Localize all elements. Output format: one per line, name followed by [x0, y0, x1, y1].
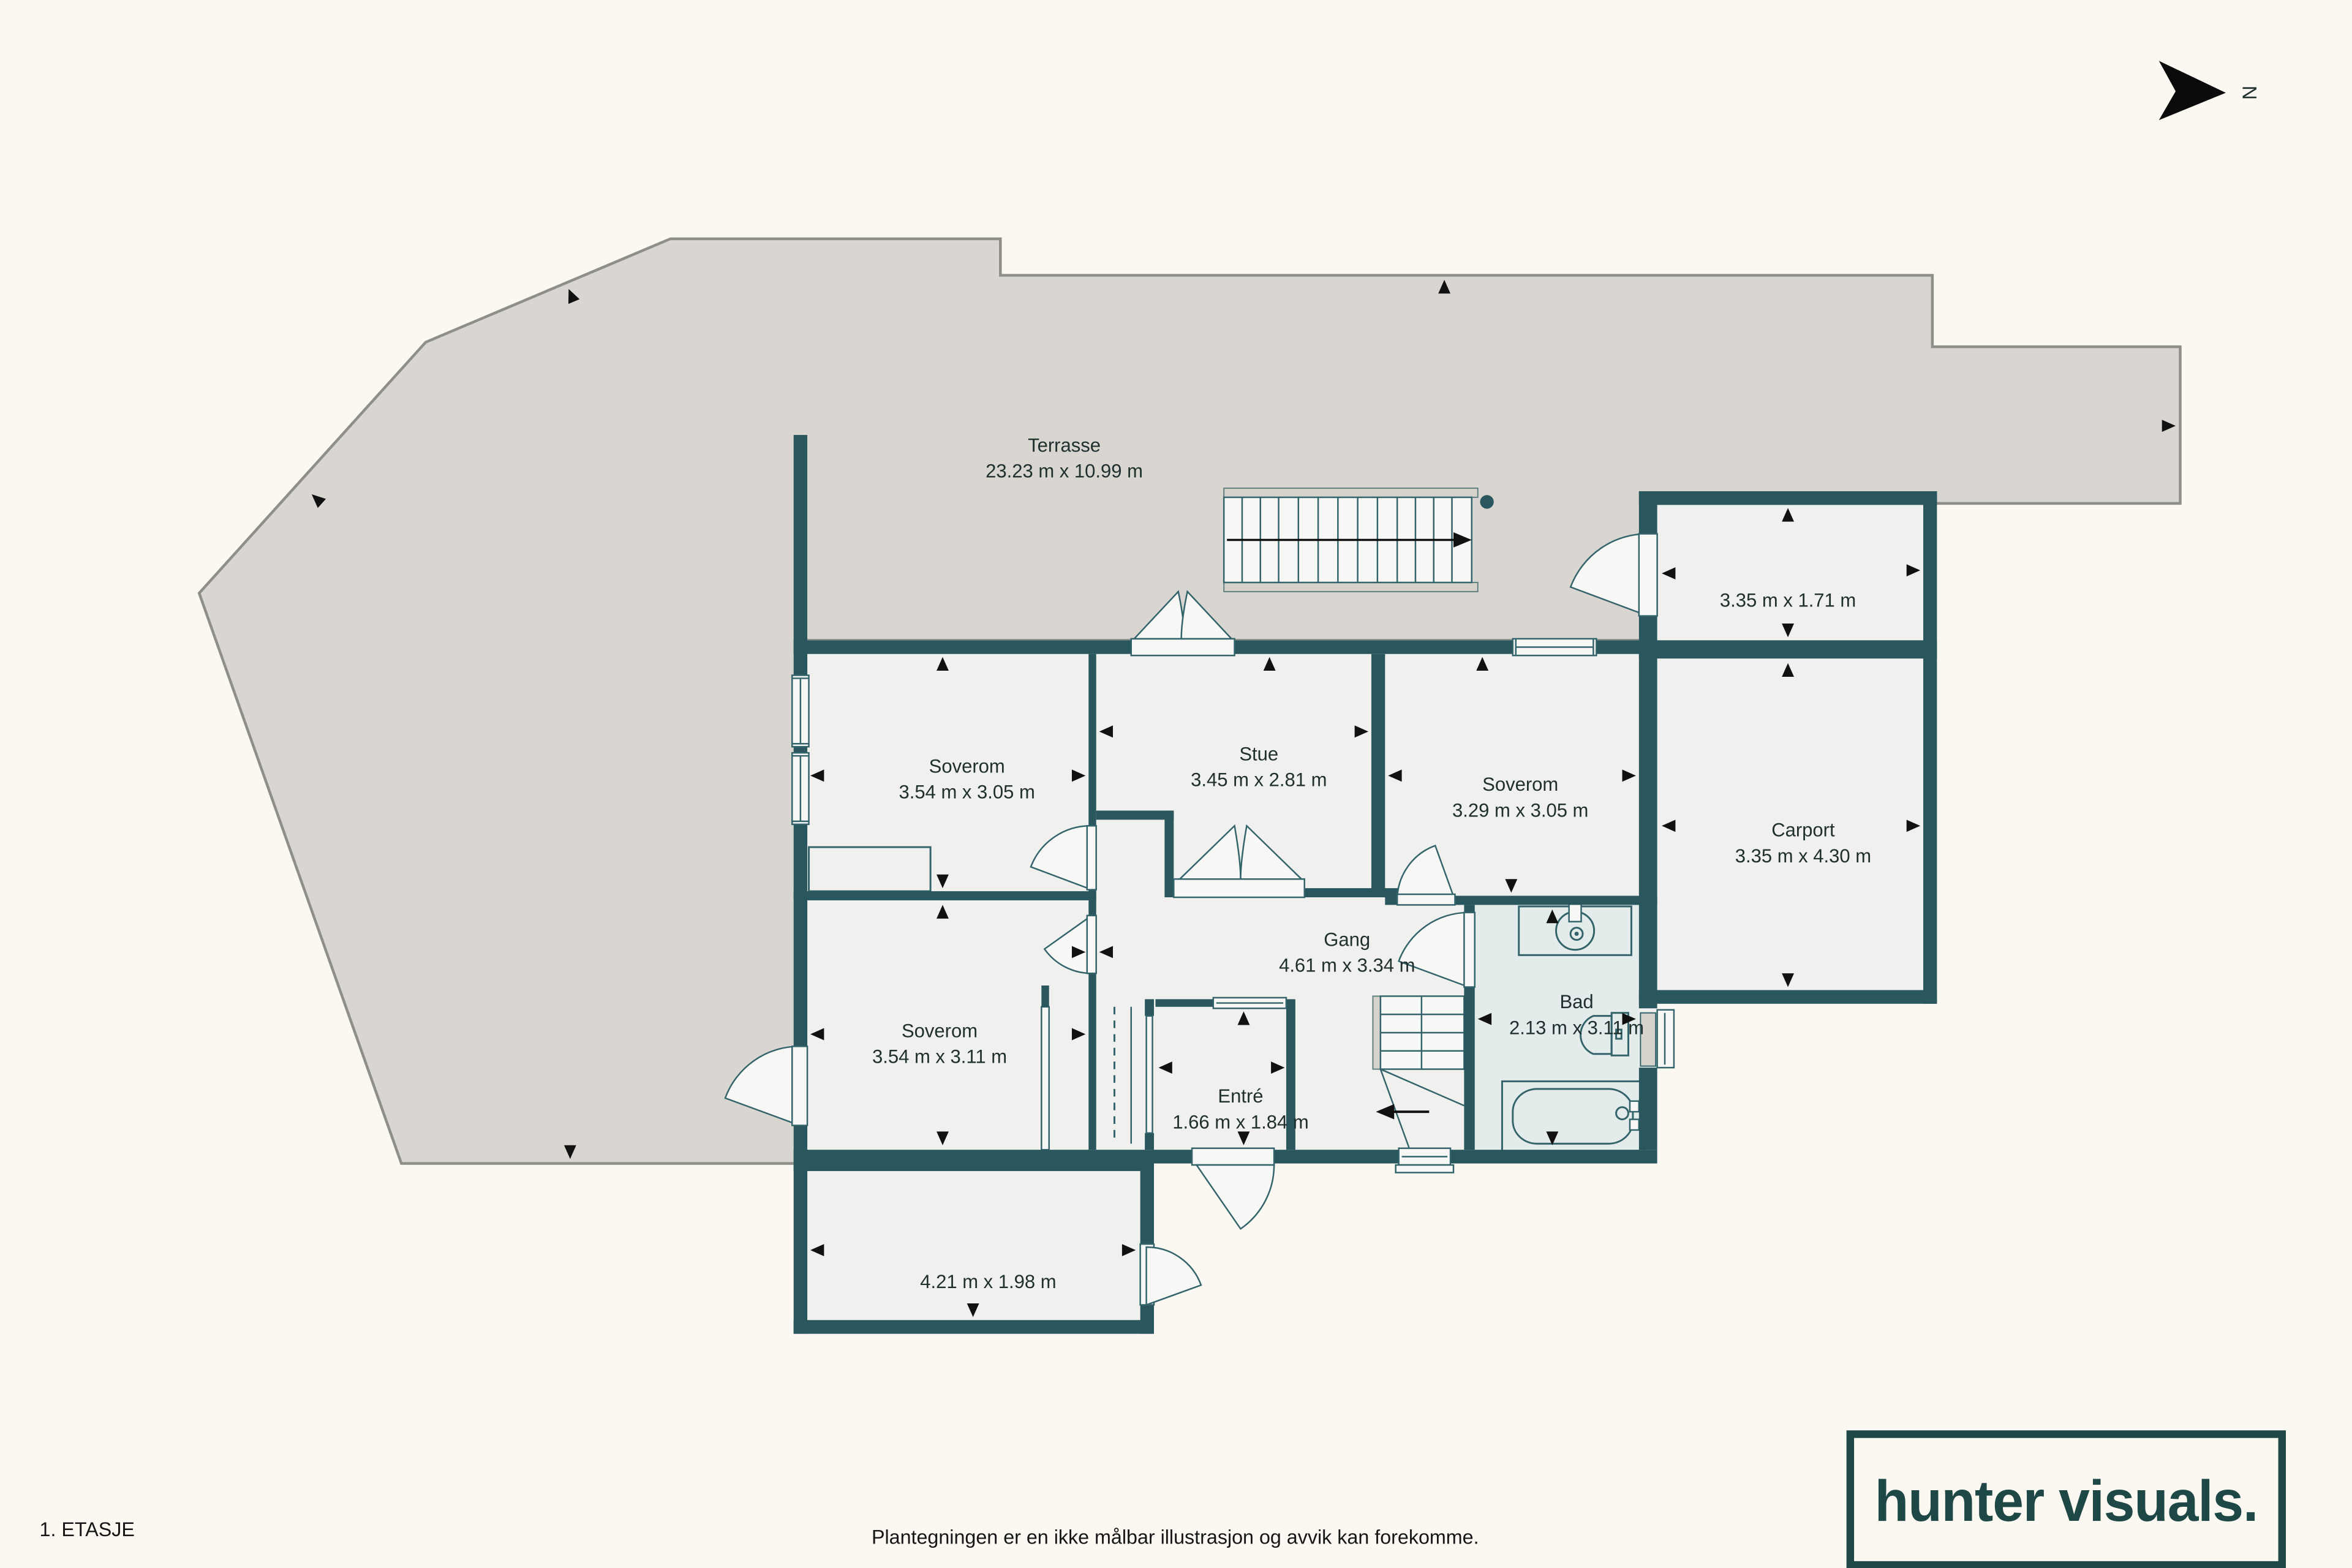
stair-rail-bottom: [1224, 582, 1478, 592]
footer: 1. ETASJE Plantegningen er en ikke målba…: [40, 1434, 2282, 1565]
wall-entre-top: [1155, 999, 1213, 1006]
room-label-gang: Gang: [1324, 929, 1370, 950]
wall-lowerroom-left: [794, 1164, 807, 1334]
room-dims-lower-room: 4.21 m x 1.98 m: [920, 1271, 1056, 1292]
room-dims-entre: 1.66 m x 1.84 m: [1172, 1111, 1308, 1133]
wall-bottom-3: [1450, 1150, 1657, 1163]
logo-text: hunter visuals.: [1875, 1469, 2258, 1533]
room-label-soverom-1: Soverom: [929, 755, 1005, 777]
carport-floor: [1639, 491, 1937, 1004]
logo: hunter visuals.: [1850, 1434, 2282, 1565]
wall-soverom1-bottom: [794, 891, 1096, 900]
floor-label: 1. ETASJE: [40, 1518, 135, 1540]
wall-bad-left-1: [1464, 905, 1474, 912]
room-dims-bad: 2.13 m x 3.11 m: [1509, 1017, 1644, 1038]
north-arrow-icon: [2159, 61, 2226, 120]
room-label-soverom-3: Soverom: [1482, 774, 1558, 795]
wall-bad-left-2: [1464, 987, 1474, 1150]
room-label-stue: Stue: [1239, 744, 1278, 765]
room-dims-stue: 3.45 m x 2.81 m: [1191, 769, 1327, 791]
wall-pocket-stub-bottom: [1145, 1133, 1154, 1150]
wall-top-1: [794, 640, 1131, 654]
wall-right-2: [1639, 616, 1657, 1009]
door-entre-exterior: [1192, 1148, 1274, 1229]
wall-bod-bottom: [1639, 640, 1937, 658]
wall-lowerroom-top: [794, 1164, 1154, 1171]
window-icon: [1396, 1148, 1453, 1173]
door-lower-room: [1140, 1244, 1201, 1305]
room-dims-soverom-1: 3.54 m x 3.05 m: [899, 782, 1035, 803]
wall-bod-top: [1639, 491, 1937, 505]
stair-rail-top: [1224, 488, 1478, 497]
north-compass: N: [2159, 61, 2261, 120]
room-label-soverom-2: Soverom: [902, 1020, 978, 1041]
wall-lowerroom-bottom: [794, 1320, 1154, 1333]
wall-stue-right: [1371, 654, 1385, 897]
room-dims-bod: 3.35 m x 1.71 m: [1720, 590, 1856, 611]
floorplan-canvas: Terrasse 23.23 m x 10.99 m Soverom 3.54 …: [0, 0, 2352, 1568]
wall-soverom3-bottom-1: [1385, 896, 1397, 905]
room-dims-soverom-2: 3.54 m x 3.11 m: [872, 1046, 1007, 1068]
room-label-bad: Bad: [1559, 991, 1593, 1012]
wall-right-3: [1639, 1068, 1657, 1150]
window-icon: [1640, 1010, 1674, 1068]
stair-post-dot-icon: [1480, 495, 1493, 508]
wall-jog-v: [1164, 810, 1174, 897]
pocket-door-leaf: [1147, 1016, 1153, 1133]
room-dims-terrasse: 23.23 m x 10.99 m: [986, 461, 1143, 482]
wall-left-lower: [794, 824, 807, 1047]
wall-carport-right: [1923, 491, 1937, 1004]
north-label: N: [2238, 86, 2260, 100]
wall-pocket-stub-top: [1145, 999, 1154, 1016]
room-dims-carport: 3.35 m x 4.30 m: [1735, 845, 1871, 867]
window-icon: [792, 753, 809, 824]
terrace-stairs: [1224, 488, 1494, 592]
wall-carport-bottom: [1639, 990, 1937, 1003]
closet-door-soverom2: [1041, 1007, 1049, 1150]
window-icon: [792, 675, 809, 747]
wall-central-1: [1088, 654, 1096, 826]
room-label-carport: Carport: [1771, 820, 1835, 841]
wall-closet-stub: [1041, 986, 1049, 1007]
room-dims-soverom-3: 3.29 m x 3.05 m: [1452, 799, 1588, 821]
wall-lowerroom-right-1: [1140, 1164, 1154, 1245]
room-label-entre: Entré: [1218, 1085, 1263, 1107]
room-dims-gang: 4.61 m x 3.34 m: [1279, 955, 1415, 976]
wall-left-mid: [794, 747, 807, 753]
wall-left-upper: [794, 435, 807, 675]
wall-top-2: [1235, 640, 1513, 654]
wall-central-3: [1088, 973, 1096, 1150]
room-label-terrasse: Terrasse: [1028, 434, 1101, 456]
window-icon: [1513, 639, 1597, 655]
wall-soverom3-bottom-2: [1455, 896, 1657, 905]
floorplan-page: Terrasse 23.23 m x 10.99 m Soverom 3.54 …: [0, 0, 2352, 1568]
disclaimer-text: Plantegningen er en ikke målbar illustra…: [872, 1526, 1479, 1548]
wall-bottom-1: [794, 1150, 1192, 1163]
window-icon: [1213, 998, 1286, 1008]
wall-jog-h: [1096, 810, 1174, 820]
wall-bottom-2: [1274, 1150, 1399, 1163]
